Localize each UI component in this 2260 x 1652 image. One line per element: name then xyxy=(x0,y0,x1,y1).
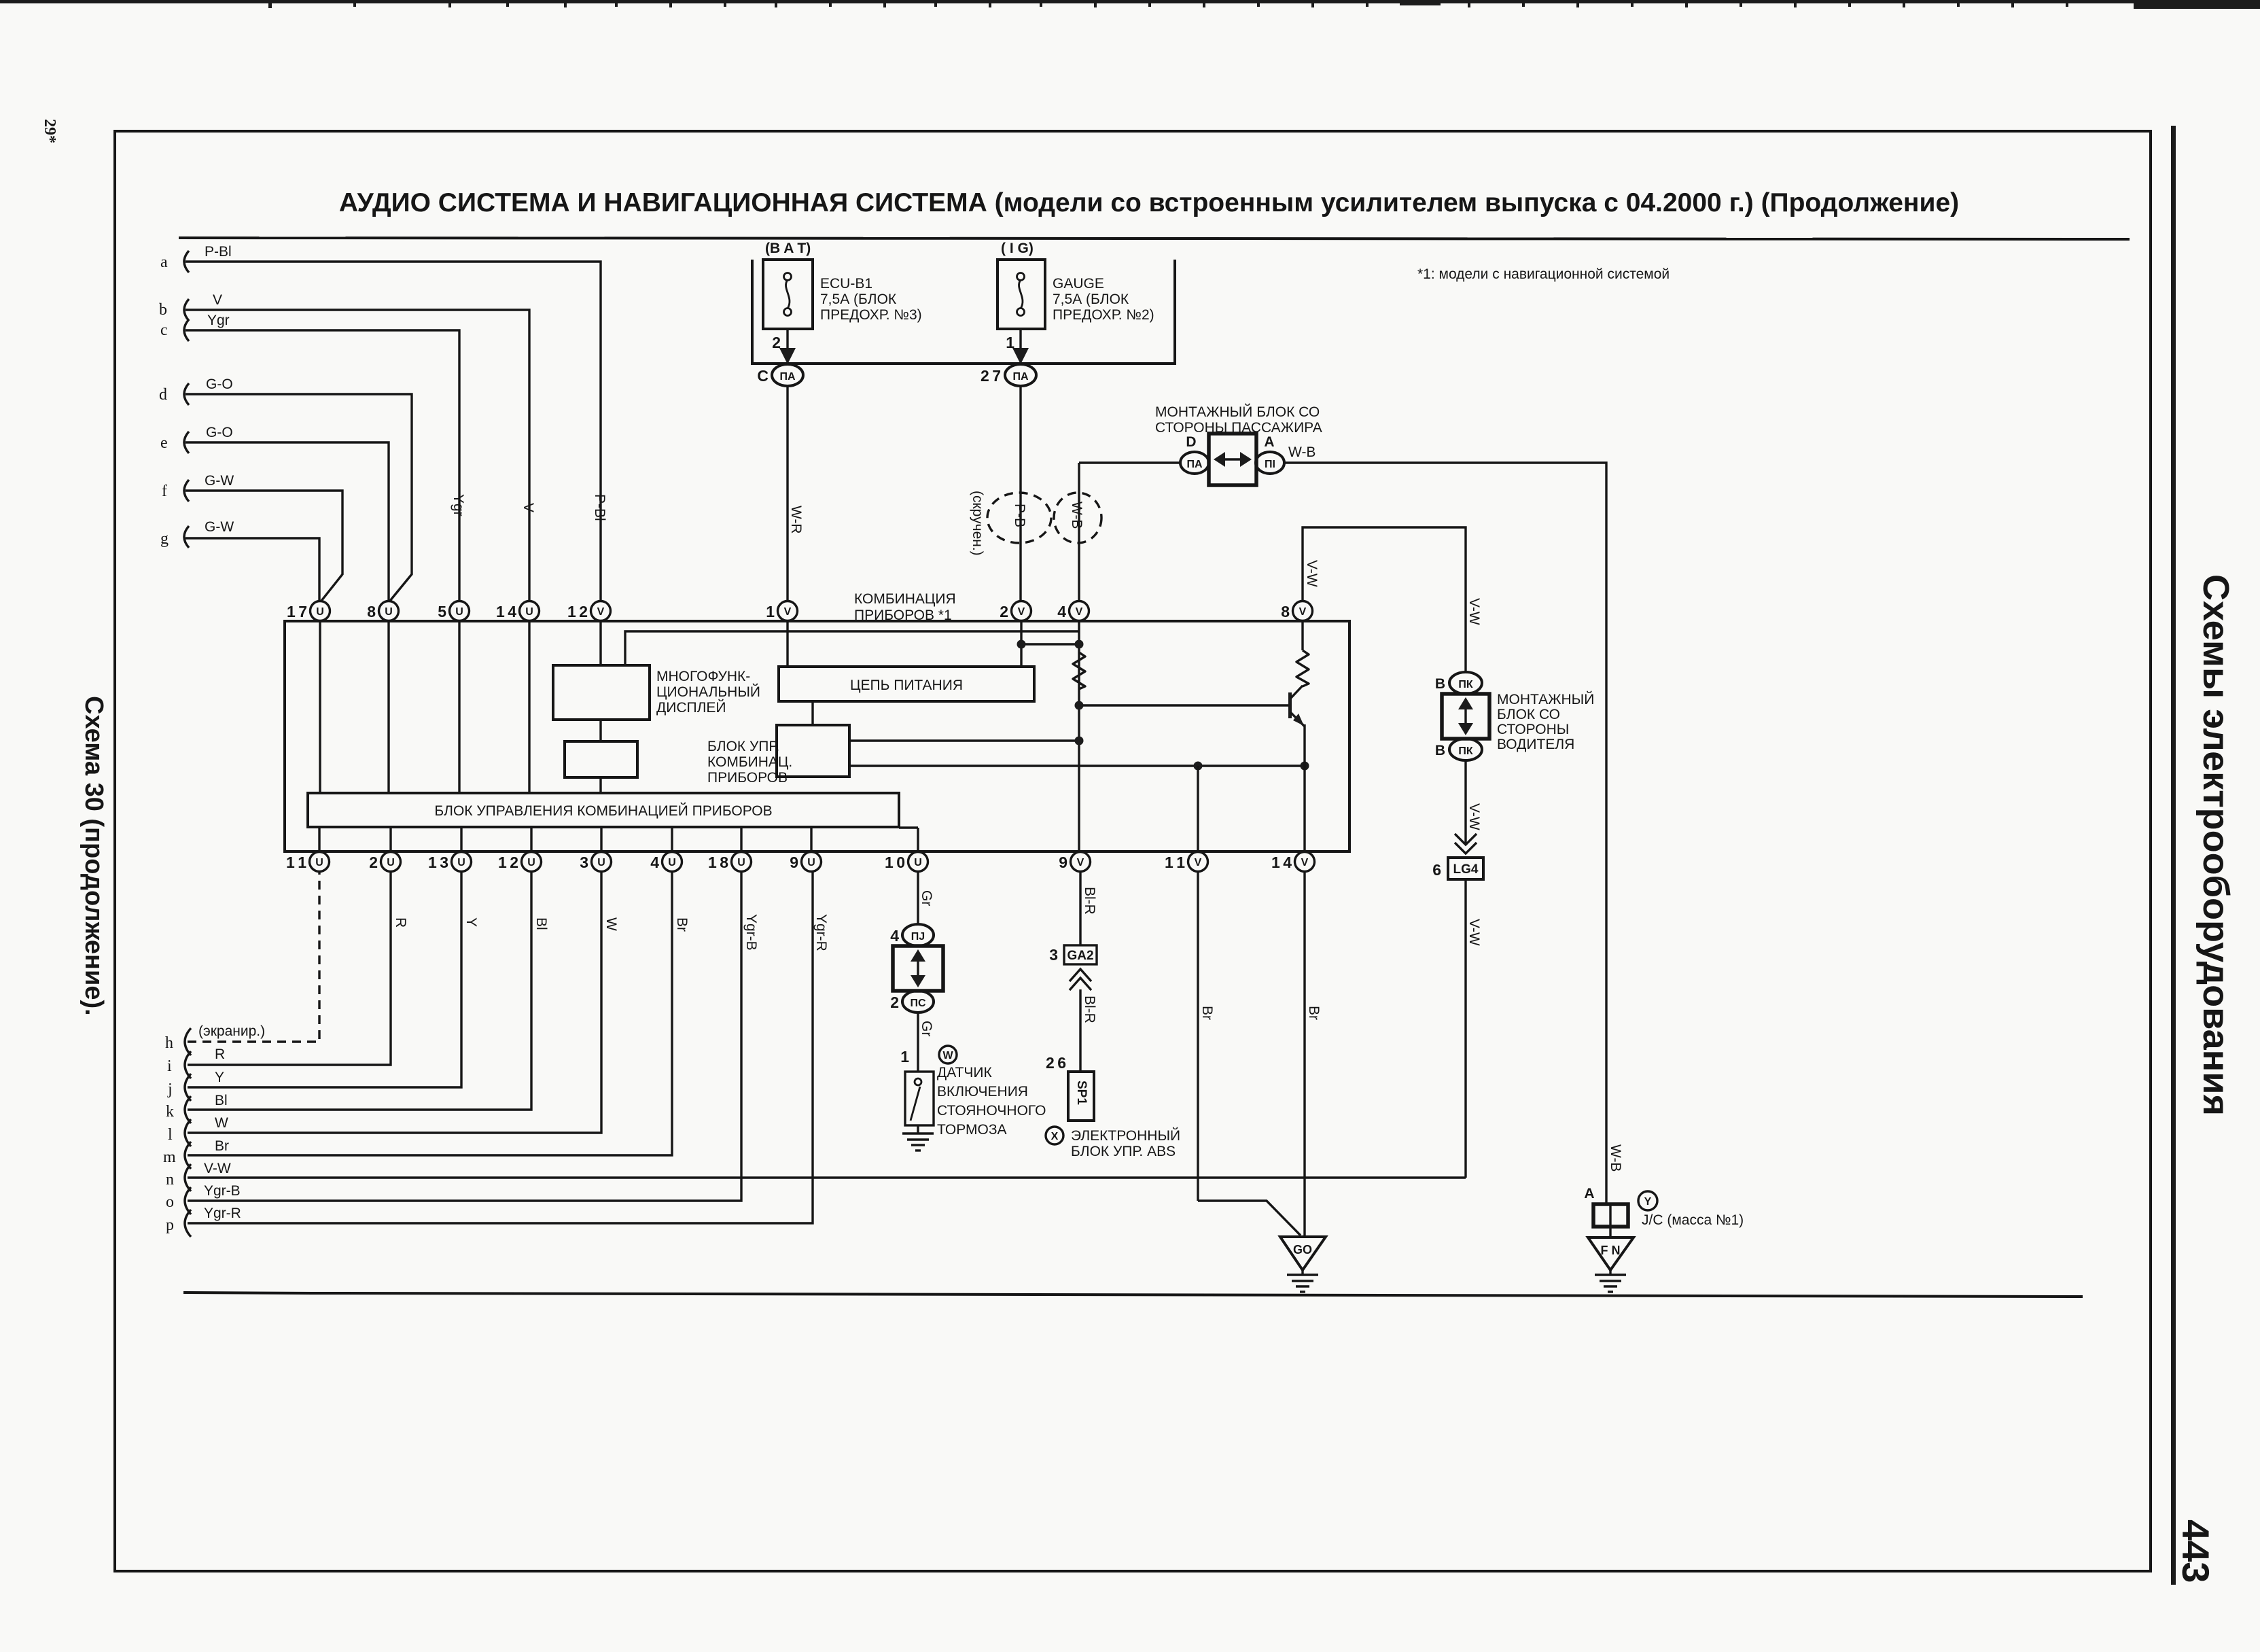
svg-text:U: U xyxy=(315,857,323,868)
svg-text:1 4: 1 4 xyxy=(1271,854,1292,871)
svg-text:V: V xyxy=(520,503,536,512)
svg-text:V: V xyxy=(597,606,605,618)
svg-text:1: 1 xyxy=(900,1048,909,1066)
svg-text:ЭЛЕКТРОННЫЙ: ЭЛЕКТРОННЫЙ xyxy=(1071,1127,1180,1144)
svg-text:29*: 29* xyxy=(41,119,58,143)
svg-text:V-W: V-W xyxy=(1304,560,1320,587)
svg-text:P-B: P-B xyxy=(1012,504,1027,527)
svg-text:V: V xyxy=(1018,606,1025,618)
svg-text:B: B xyxy=(1435,743,1445,758)
svg-text:U: U xyxy=(597,857,605,868)
svg-text:СТОРОНЫ: СТОРОНЫ xyxy=(1497,722,1569,737)
svg-text:1 2: 1 2 xyxy=(567,603,587,620)
svg-text:Ygr-R: Ygr-R xyxy=(813,914,829,951)
svg-text:U: U xyxy=(914,857,922,868)
svg-text:Bl: Bl xyxy=(533,917,549,930)
svg-text:2 7: 2 7 xyxy=(981,367,1000,385)
svg-text:ПА: ПА xyxy=(1186,459,1203,470)
svg-text:W: W xyxy=(942,1050,953,1061)
svg-text:ПА: ПА xyxy=(1012,371,1029,383)
svg-text:SP1: SP1 xyxy=(1074,1080,1089,1105)
svg-text:ВОДИТЕЛЯ: ВОДИТЕЛЯ xyxy=(1497,737,1574,752)
svg-text:АУДИО СИСТЕМА И НАВИГАЦИОННАЯ: АУДИО СИСТЕМА И НАВИГАЦИОННАЯ СИСТЕМА (м… xyxy=(339,188,1959,217)
svg-text:7,5А (БЛОК: 7,5А (БЛОК xyxy=(820,292,897,307)
svg-text:J/C (масса №1): J/C (масса №1) xyxy=(1642,1212,1744,1228)
svg-text:G-W: G-W xyxy=(205,473,234,489)
svg-text:ПРЕДОХР. №2): ПРЕДОХР. №2) xyxy=(1053,307,1154,323)
svg-text:ПРЕДОХР. №3): ПРЕДОХР. №3) xyxy=(820,307,922,323)
svg-text:443: 443 xyxy=(2174,1519,2217,1583)
svg-text:V: V xyxy=(1076,606,1083,618)
svg-text:LG4: LG4 xyxy=(1453,862,1479,877)
svg-text:c: c xyxy=(160,321,168,339)
svg-text:МНОГОФУНК-: МНОГОФУНК- xyxy=(656,669,750,684)
svg-text:V: V xyxy=(1301,857,1309,868)
svg-text:1 1: 1 1 xyxy=(1165,854,1185,871)
svg-text:e: e xyxy=(160,434,168,452)
svg-text:*1: модели с навигационной сис: *1: модели с навигационной системой xyxy=(1417,266,1670,282)
svg-text:A: A xyxy=(1584,1186,1594,1201)
svg-text:U: U xyxy=(807,857,815,868)
svg-text:2: 2 xyxy=(1000,603,1008,620)
svg-text:9: 9 xyxy=(790,854,798,871)
svg-text:Br: Br xyxy=(215,1138,229,1154)
svg-text:f: f xyxy=(162,482,167,500)
svg-text:1 0: 1 0 xyxy=(885,854,904,871)
svg-text:a: a xyxy=(160,253,168,271)
svg-text:Br: Br xyxy=(1306,1006,1322,1020)
svg-text:U: U xyxy=(668,857,676,868)
svg-text:U: U xyxy=(455,606,463,618)
svg-text:V: V xyxy=(1299,606,1307,618)
svg-text:8: 8 xyxy=(367,603,376,620)
svg-text:КОМБИНАЦИЯ: КОМБИНАЦИЯ xyxy=(854,591,956,607)
svg-text:Bl-R: Bl-R xyxy=(1082,887,1097,915)
svg-text:БЛОК УПР.: БЛОК УПР. xyxy=(707,739,779,754)
svg-text:ПРИБОРОВ: ПРИБОРОВ xyxy=(707,770,788,786)
svg-text:БЛОК УПР. ABS: БЛОК УПР. ABS xyxy=(1071,1144,1176,1159)
svg-text:Ygr-B: Ygr-B xyxy=(204,1183,241,1199)
svg-text:(экранир.): (экранир.) xyxy=(198,1023,265,1039)
svg-text:A: A xyxy=(1264,434,1274,450)
svg-text:U: U xyxy=(387,857,395,868)
svg-text:R: R xyxy=(215,1047,225,1062)
svg-text:U: U xyxy=(737,857,745,868)
svg-text:p: p xyxy=(166,1216,174,1234)
svg-text:Y: Y xyxy=(1644,1196,1652,1208)
svg-text:B: B xyxy=(1435,676,1445,692)
svg-text:4: 4 xyxy=(890,927,899,945)
svg-text:P-Bl: P-Bl xyxy=(205,244,232,260)
svg-text:U: U xyxy=(385,606,393,618)
svg-text:Ygr-B: Ygr-B xyxy=(743,914,759,951)
svg-text:G-W: G-W xyxy=(205,519,234,535)
svg-text:Br: Br xyxy=(674,917,690,932)
svg-text:4: 4 xyxy=(650,854,659,871)
svg-text:Bl-R: Bl-R xyxy=(1082,996,1097,1023)
svg-text:ВКЛЮЧЕНИЯ: ВКЛЮЧЕНИЯ xyxy=(937,1084,1028,1100)
svg-text:F N: F N xyxy=(1601,1244,1621,1257)
svg-text:Схема 30 (продолжение).: Схема 30 (продолжение). xyxy=(80,696,108,1016)
svg-text:3: 3 xyxy=(580,854,588,871)
svg-text:R: R xyxy=(393,917,408,928)
svg-text:ПК: ПК xyxy=(1458,745,1473,757)
svg-text:U: U xyxy=(527,857,535,868)
svg-text:W-B: W-B xyxy=(1608,1144,1623,1172)
svg-text:U: U xyxy=(525,606,533,618)
svg-text:C: C xyxy=(757,367,768,385)
svg-text:V: V xyxy=(1077,857,1084,868)
svg-text:Y: Y xyxy=(463,917,479,927)
svg-text:ПI: ПI xyxy=(1265,459,1275,470)
svg-text:W-B: W-B xyxy=(1069,502,1084,529)
svg-text:Y: Y xyxy=(215,1070,224,1085)
svg-text:ЦИОНАЛЬНЫЙ: ЦИОНАЛЬНЫЙ xyxy=(656,684,760,700)
svg-text:GO: GO xyxy=(1293,1243,1312,1256)
svg-text:ECU-B1: ECU-B1 xyxy=(820,276,872,292)
svg-text:8: 8 xyxy=(1281,603,1290,620)
svg-text:7,5А (БЛОК: 7,5А (БЛОК xyxy=(1053,292,1129,307)
svg-text:k: k xyxy=(166,1103,174,1121)
svg-text:(скручен.): (скручен.) xyxy=(970,491,985,556)
svg-text:W: W xyxy=(215,1115,228,1131)
svg-text:3: 3 xyxy=(1049,946,1057,964)
svg-text:ПА: ПА xyxy=(779,371,796,383)
svg-text:Br: Br xyxy=(1199,1006,1215,1020)
svg-text:G-O: G-O xyxy=(206,376,233,392)
svg-text:V: V xyxy=(1195,857,1202,868)
svg-text:2 6: 2 6 xyxy=(1046,1054,1065,1072)
svg-text:МОНТАЖНЫЙ БЛОК СО: МОНТАЖНЫЙ БЛОК СО xyxy=(1155,404,1320,420)
svg-text:ДАТЧИК: ДАТЧИК xyxy=(937,1065,993,1080)
svg-text:6: 6 xyxy=(1432,861,1441,879)
svg-text:U: U xyxy=(457,857,465,868)
svg-text:2: 2 xyxy=(369,854,377,871)
svg-text:V-W: V-W xyxy=(204,1161,231,1176)
svg-text:V: V xyxy=(784,606,792,618)
svg-text:V-W: V-W xyxy=(1466,598,1482,625)
svg-text:j: j xyxy=(167,1080,173,1098)
svg-text:l: l xyxy=(168,1126,173,1144)
svg-text:U: U xyxy=(316,606,324,618)
svg-text:W-R: W-R xyxy=(788,506,804,534)
svg-text:D: D xyxy=(1186,434,1196,450)
svg-text:ПJ: ПJ xyxy=(911,931,925,943)
svg-text:X: X xyxy=(1051,1131,1059,1142)
svg-text:2: 2 xyxy=(890,994,898,1011)
svg-text:Gr: Gr xyxy=(919,1021,934,1036)
svg-text:Ygr-R: Ygr-R xyxy=(204,1206,241,1221)
svg-text:b: b xyxy=(159,301,167,319)
svg-text:Gr: Gr xyxy=(919,890,934,906)
svg-text:1 3: 1 3 xyxy=(428,854,448,871)
svg-text:GAUGE: GAUGE xyxy=(1053,276,1104,292)
svg-text:МОНТАЖНЫЙ: МОНТАЖНЫЙ xyxy=(1497,691,1594,707)
svg-text:V-W: V-W xyxy=(1466,803,1482,830)
svg-text:Ygr: Ygr xyxy=(451,494,466,516)
svg-text:Ygr: Ygr xyxy=(207,313,230,328)
svg-text:2: 2 xyxy=(772,334,780,351)
svg-text:h: h xyxy=(165,1034,173,1052)
svg-text:1 7: 1 7 xyxy=(287,603,306,620)
svg-text:ПC: ПC xyxy=(910,998,926,1009)
svg-text:1 4: 1 4 xyxy=(496,603,516,620)
svg-text:(B A T): (B A T) xyxy=(765,241,811,256)
svg-text:n: n xyxy=(166,1171,174,1189)
svg-text:СТОЯНОЧНОГО: СТОЯНОЧНОГО xyxy=(937,1103,1046,1119)
svg-text:1 8: 1 8 xyxy=(708,854,728,871)
svg-text:P-Bl: P-Bl xyxy=(592,494,607,521)
svg-text:ТОРМОЗА: ТОРМОЗА xyxy=(937,1122,1007,1138)
svg-text:КОМБИНАЦ.: КОМБИНАЦ. xyxy=(707,754,792,770)
svg-text:БЛОК УПРАВЛЕНИЯ КОМБИНАЦИЕЙ ПР: БЛОК УПРАВЛЕНИЯ КОМБИНАЦИЕЙ ПРИБОРОВ xyxy=(434,803,772,819)
svg-text:9: 9 xyxy=(1059,854,1067,871)
svg-text:1 1: 1 1 xyxy=(286,854,306,871)
svg-text:Схемы электрооборудования: Схемы электрооборудования xyxy=(2195,574,2236,1116)
svg-text:ПРИБОРОВ *1: ПРИБОРОВ *1 xyxy=(854,608,952,623)
svg-text:W-B: W-B xyxy=(1288,444,1316,460)
svg-text:ПК: ПК xyxy=(1458,679,1473,690)
svg-text:СТОРОНЫ ПАССАЖИРА: СТОРОНЫ ПАССАЖИРА xyxy=(1155,420,1322,436)
svg-text:БЛОК СО: БЛОК СО xyxy=(1497,707,1560,722)
svg-text:V-W: V-W xyxy=(1466,919,1482,946)
svg-text:5: 5 xyxy=(438,603,446,620)
svg-text:GA2: GA2 xyxy=(1067,949,1093,963)
svg-text:1: 1 xyxy=(766,603,775,620)
svg-text:d: d xyxy=(159,386,167,404)
svg-text:ДИСПЛЕЙ: ДИСПЛЕЙ xyxy=(656,699,726,716)
svg-text:ЦЕПЬ ПИТАНИЯ: ЦЕПЬ ПИТАНИЯ xyxy=(850,678,963,693)
svg-text:W: W xyxy=(603,917,619,931)
svg-text:( I G): ( I G) xyxy=(1001,241,1034,256)
svg-text:g: g xyxy=(160,530,169,548)
svg-text:i: i xyxy=(167,1057,172,1075)
svg-text:o: o xyxy=(166,1193,174,1211)
svg-text:1 2: 1 2 xyxy=(498,854,518,871)
svg-text:m: m xyxy=(163,1148,176,1166)
svg-text:4: 4 xyxy=(1057,603,1066,620)
svg-text:G-O: G-O xyxy=(206,425,233,440)
svg-text:V: V xyxy=(213,292,222,308)
svg-text:Bl: Bl xyxy=(215,1093,228,1108)
